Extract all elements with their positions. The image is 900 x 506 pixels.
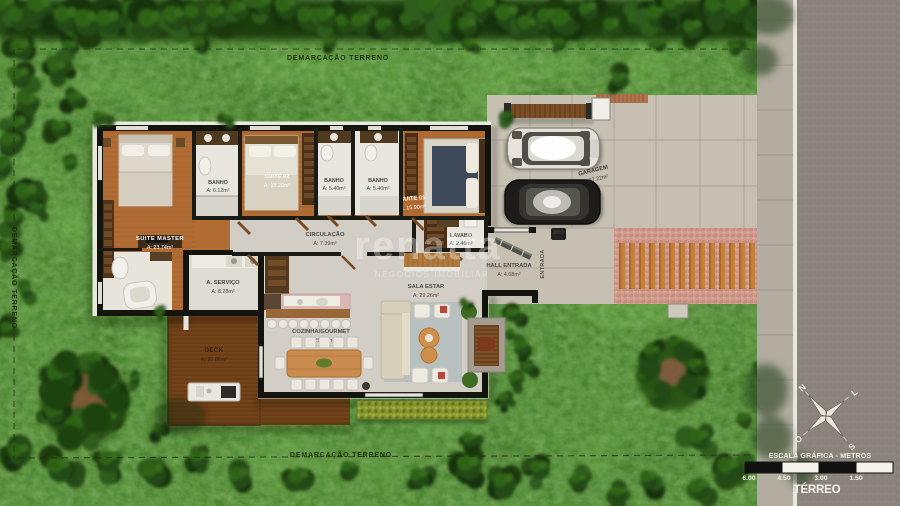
svg-text:A: 4.68m²: A: 4.68m² <box>497 272 521 278</box>
svg-text:SUITE 02: SUITE 02 <box>264 174 289 180</box>
svg-text:A: 7.39m²: A: 7.39m² <box>313 241 337 247</box>
svg-text:A: 6.12m²: A: 6.12m² <box>207 188 230 194</box>
svg-text:BANHO: BANHO <box>208 180 228 186</box>
svg-text:TÉRREO: TÉRREO <box>794 483 841 496</box>
svg-text:A: 13.20m²: A: 13.20m² <box>264 183 291 189</box>
svg-text:1.50: 1.50 <box>849 475 862 482</box>
svg-text:6.00: 6.00 <box>742 475 755 482</box>
svg-text:BANHO: BANHO <box>324 178 344 184</box>
svg-text:ESCALA GRÁFICA - METROS: ESCALA GRÁFICA - METROS <box>769 451 872 460</box>
svg-text:3.00: 3.00 <box>814 475 827 482</box>
svg-text:A: 29.26m²: A: 29.26m² <box>413 293 440 299</box>
svg-text:A: 22.86m²: A: 22.86m² <box>201 357 228 363</box>
svg-text:4.50: 4.50 <box>777 475 790 482</box>
svg-text:COZINHA/GOURMET: COZINHA/GOURMET <box>292 329 350 335</box>
svg-text:A: 5.40m²: A: 5.40m² <box>367 186 390 192</box>
svg-text:ENTRADA: ENTRADA <box>540 249 546 278</box>
svg-text:SALA ESTAR: SALA ESTAR <box>408 284 445 290</box>
svg-text:A: 5.40m²: A: 5.40m² <box>323 186 346 192</box>
svg-text:A: 8.28m²: A: 8.28m² <box>211 289 235 295</box>
svg-text:SUITE MASTER: SUITE MASTER <box>136 236 184 242</box>
svg-text:A. SERVIÇO: A. SERVIÇO <box>206 280 240 286</box>
svg-text:DECK: DECK <box>204 348 223 354</box>
svg-text:DEMARCAÇÃO TERRENO: DEMARCAÇÃO TERRENO <box>287 53 389 62</box>
svg-text:NEGÓCIOS IMOBILIÁR: NEGÓCIOS IMOBILIÁR <box>375 270 490 279</box>
svg-text:CIRCULAÇÃO: CIRCULAÇÃO <box>306 231 345 238</box>
svg-text:BANHO: BANHO <box>368 178 388 184</box>
svg-text:A: 23.74m²: A: 23.74m² <box>147 245 174 251</box>
svg-text:renatta: renatta <box>354 224 501 268</box>
svg-text:DEMARCAÇÃO TERRENO: DEMARCAÇÃO TERRENO <box>290 450 392 459</box>
svg-text:DEMARCAÇÃO TERRENO: DEMARCAÇÃO TERRENO <box>10 227 19 329</box>
